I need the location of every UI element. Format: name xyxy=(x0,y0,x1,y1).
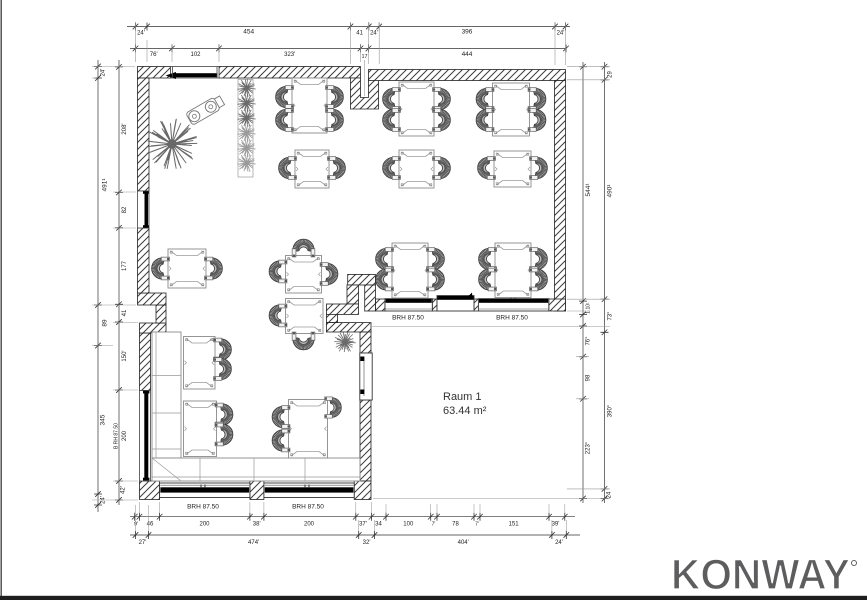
svg-text:208': 208' xyxy=(122,123,128,134)
svg-text:41: 41 xyxy=(122,309,128,316)
svg-text:39': 39' xyxy=(552,522,560,528)
svg-text:BRH 87.50: BRH 87.50 xyxy=(496,315,528,322)
svg-text:177: 177 xyxy=(122,260,128,271)
svg-text:76°: 76° xyxy=(586,336,592,346)
svg-text:491¹: 491¹ xyxy=(102,178,109,192)
svg-text:34: 34 xyxy=(375,522,382,528)
svg-text:73°: 73° xyxy=(608,311,614,321)
svg-text:38': 38' xyxy=(253,522,261,528)
svg-text:KONWAY: KONWAY xyxy=(671,551,850,599)
svg-text:BRH 87.50: BRH 87.50 xyxy=(187,504,219,511)
svg-text:24': 24' xyxy=(137,31,145,37)
svg-text:345: 345 xyxy=(100,414,107,425)
svg-text:82: 82 xyxy=(122,206,128,213)
svg-text:544¹: 544¹ xyxy=(585,183,592,197)
svg-text:396: 396 xyxy=(462,29,473,36)
svg-text:390°: 390° xyxy=(608,404,614,417)
svg-text:24': 24' xyxy=(370,31,378,37)
svg-text:98: 98 xyxy=(586,374,592,381)
svg-text:B RH 87.50: B RH 87.50 xyxy=(114,423,120,449)
svg-text:151: 151 xyxy=(509,522,520,528)
svg-text:323': 323' xyxy=(284,52,295,58)
svg-text:200: 200 xyxy=(199,522,210,528)
svg-text:46: 46 xyxy=(147,522,154,528)
svg-text:78: 78 xyxy=(452,522,459,528)
svg-text:24': 24' xyxy=(101,69,107,77)
svg-text:17: 17 xyxy=(361,54,367,60)
svg-text:100: 100 xyxy=(403,522,414,528)
svg-text:7': 7' xyxy=(432,522,436,528)
svg-text:32': 32' xyxy=(363,540,371,546)
svg-text:223°: 223° xyxy=(586,441,592,454)
svg-text:200: 200 xyxy=(304,522,315,528)
svg-text:404': 404' xyxy=(458,540,469,546)
svg-text:Raum 1: Raum 1 xyxy=(443,391,482,403)
svg-text:24: 24 xyxy=(607,491,613,498)
svg-text:63.44 m²: 63.44 m² xyxy=(443,405,487,417)
svg-text:24': 24' xyxy=(555,540,563,546)
svg-text:150': 150' xyxy=(122,350,128,361)
svg-text:102: 102 xyxy=(190,52,201,58)
svg-text:9': 9' xyxy=(134,522,138,528)
svg-text:37': 37' xyxy=(359,522,367,528)
svg-text:490¹: 490¹ xyxy=(607,184,614,198)
svg-text:BRH 87.50: BRH 87.50 xyxy=(292,504,324,511)
svg-text:41: 41 xyxy=(356,31,363,37)
svg-text:27': 27' xyxy=(139,540,147,546)
svg-text:24': 24' xyxy=(557,31,565,37)
svg-text:474': 474' xyxy=(248,540,259,546)
svg-text:1.10¹: 1.10¹ xyxy=(586,302,592,314)
svg-text:200: 200 xyxy=(122,430,128,441)
svg-text:29: 29 xyxy=(608,71,614,78)
svg-text:444: 444 xyxy=(462,51,473,58)
svg-text:42': 42' xyxy=(121,486,127,494)
svg-text:7': 7' xyxy=(475,522,479,528)
svg-text:BRH 87.50: BRH 87.50 xyxy=(392,315,424,322)
svg-text:454: 454 xyxy=(243,29,254,36)
svg-text:89: 89 xyxy=(102,319,109,327)
svg-text:76': 76' xyxy=(150,52,158,58)
